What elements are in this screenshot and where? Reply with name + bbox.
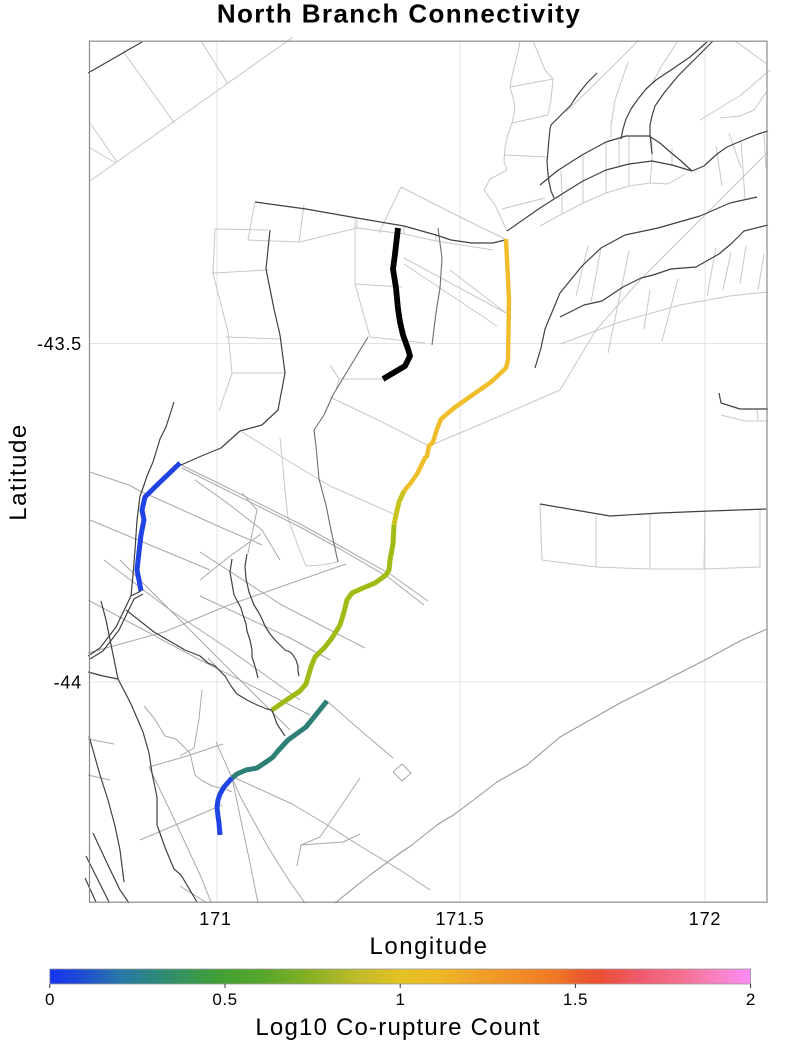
svg-text:0.5: 0.5 [212, 990, 237, 1009]
svg-text:1: 1 [395, 990, 404, 1009]
svg-text:Latitude: Latitude [5, 423, 32, 520]
svg-text:North Branch Connectivity: North Branch Connectivity [217, 0, 581, 29]
svg-text:-44: -44 [54, 673, 82, 693]
svg-text:0: 0 [45, 990, 54, 1009]
svg-text:1.5: 1.5 [563, 990, 588, 1009]
svg-text:171: 171 [199, 909, 231, 929]
svg-text:Log10 Co-rupture Count: Log10 Co-rupture Count [255, 1014, 540, 1041]
svg-text:171.5: 171.5 [435, 909, 484, 929]
svg-text:172: 172 [689, 909, 721, 929]
svg-text:2: 2 [746, 990, 755, 1009]
svg-text:Longitude: Longitude [370, 933, 489, 960]
svg-text:-43.5: -43.5 [37, 334, 82, 354]
